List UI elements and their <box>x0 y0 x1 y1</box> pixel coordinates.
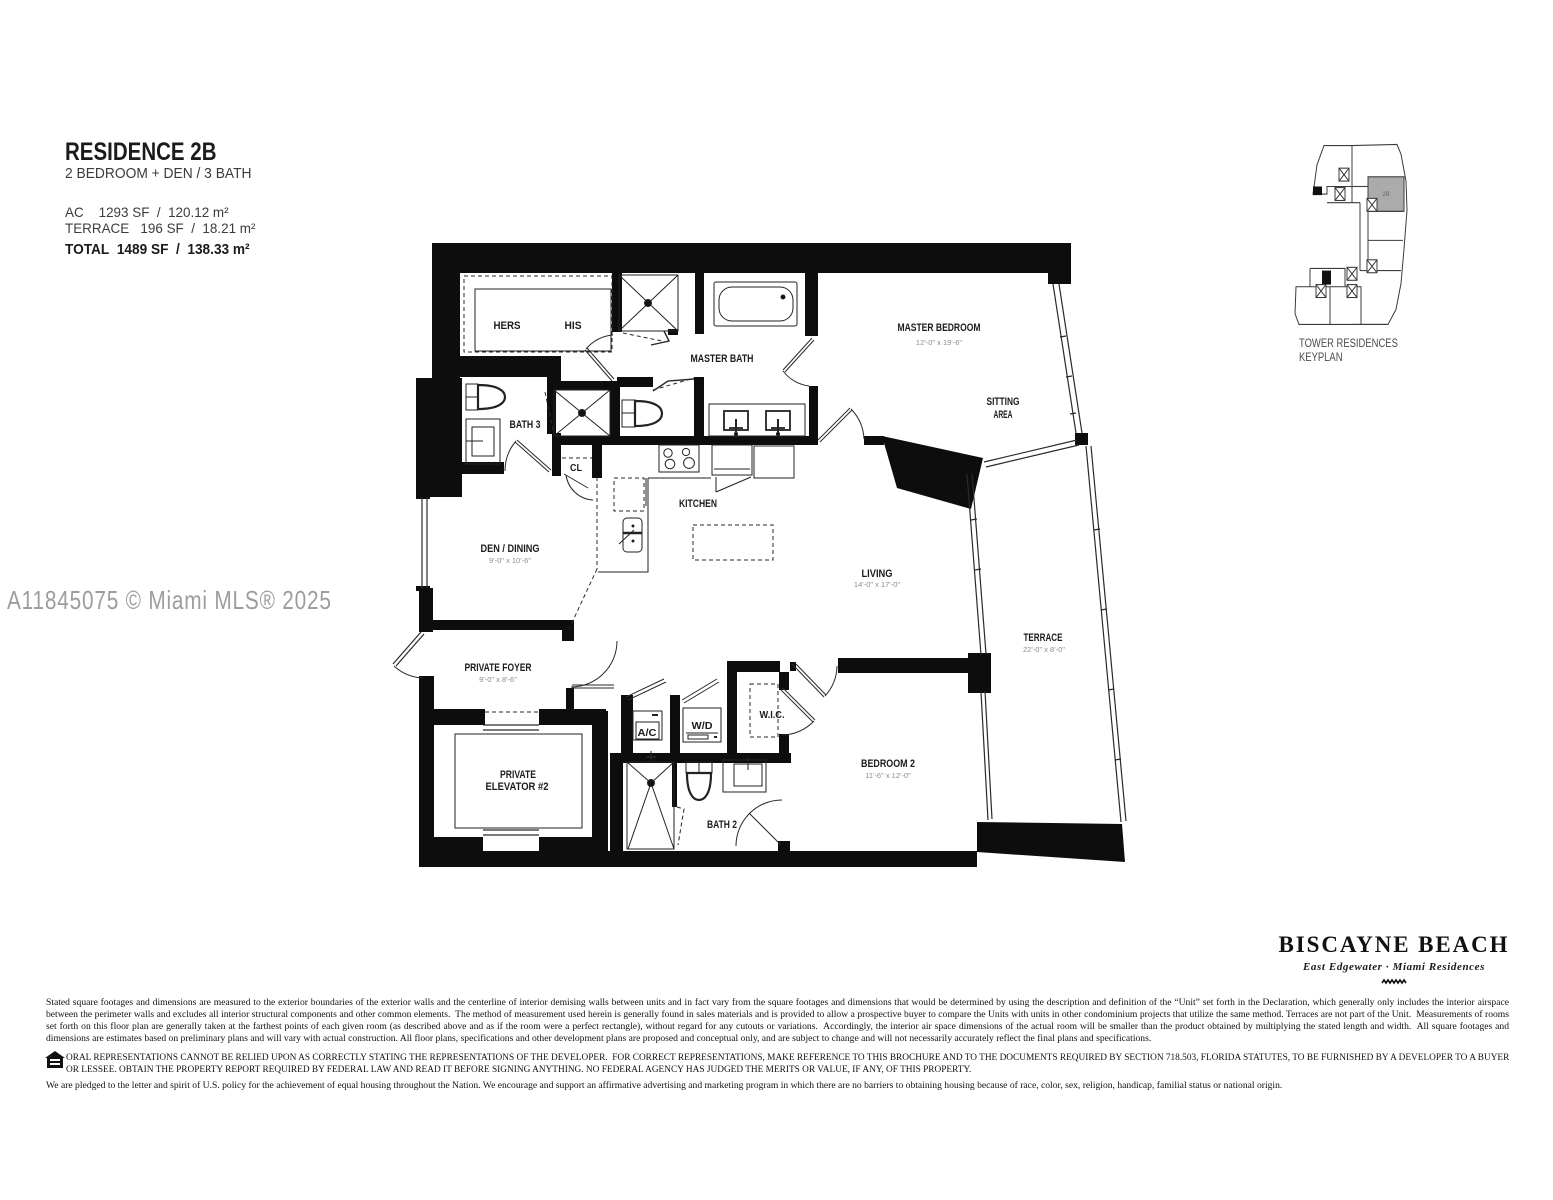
svg-text:PRIVATE: PRIVATE <box>500 769 536 781</box>
svg-text:SITTING: SITTING <box>987 396 1020 408</box>
svg-text:BATH 2: BATH 2 <box>707 819 737 831</box>
svg-text:LIVING: LIVING <box>862 568 893 580</box>
svg-text:12'-0" x 19'-6": 12'-0" x 19'-6" <box>916 338 962 347</box>
svg-text:HIS: HIS <box>565 320 582 332</box>
svg-text:MASTER BATH: MASTER BATH <box>691 353 754 365</box>
svg-text:BEDROOM 2: BEDROOM 2 <box>861 758 915 770</box>
svg-text:MASTER BEDROOM: MASTER BEDROOM <box>898 322 981 334</box>
svg-text:PRIVATE FOYER: PRIVATE FOYER <box>465 662 532 674</box>
svg-text:DEN / DINING: DEN / DINING <box>481 543 540 555</box>
svg-text:2B: 2B <box>1382 191 1389 198</box>
svg-text:AREA: AREA <box>994 409 1013 421</box>
svg-text:KITCHEN: KITCHEN <box>679 498 717 510</box>
svg-text:W.I.C.: W.I.C. <box>760 710 785 721</box>
svg-text:TERRACE: TERRACE <box>1024 632 1063 644</box>
svg-text:22'-0" x 8'-0": 22'-0" x 8'-0" <box>1023 645 1065 654</box>
svg-text:9'-0" x 10'-6": 9'-0" x 10'-6" <box>489 556 531 565</box>
svg-text:W/D: W/D <box>692 721 713 732</box>
svg-text:9'-0" x 8'-6": 9'-0" x 8'-6" <box>479 675 517 684</box>
svg-text:CL: CL <box>570 463 582 474</box>
svg-text:14'-0" x 17'-0": 14'-0" x 17'-0" <box>854 580 900 589</box>
svg-text:HERS: HERS <box>494 320 521 332</box>
svg-text:A/C: A/C <box>638 728 657 739</box>
svg-text:ELEVATOR #2: ELEVATOR #2 <box>486 781 549 793</box>
svg-text:BATH 3: BATH 3 <box>510 419 541 431</box>
svg-text:11'-6" x 12'-0": 11'-6" x 12'-0" <box>865 771 911 780</box>
